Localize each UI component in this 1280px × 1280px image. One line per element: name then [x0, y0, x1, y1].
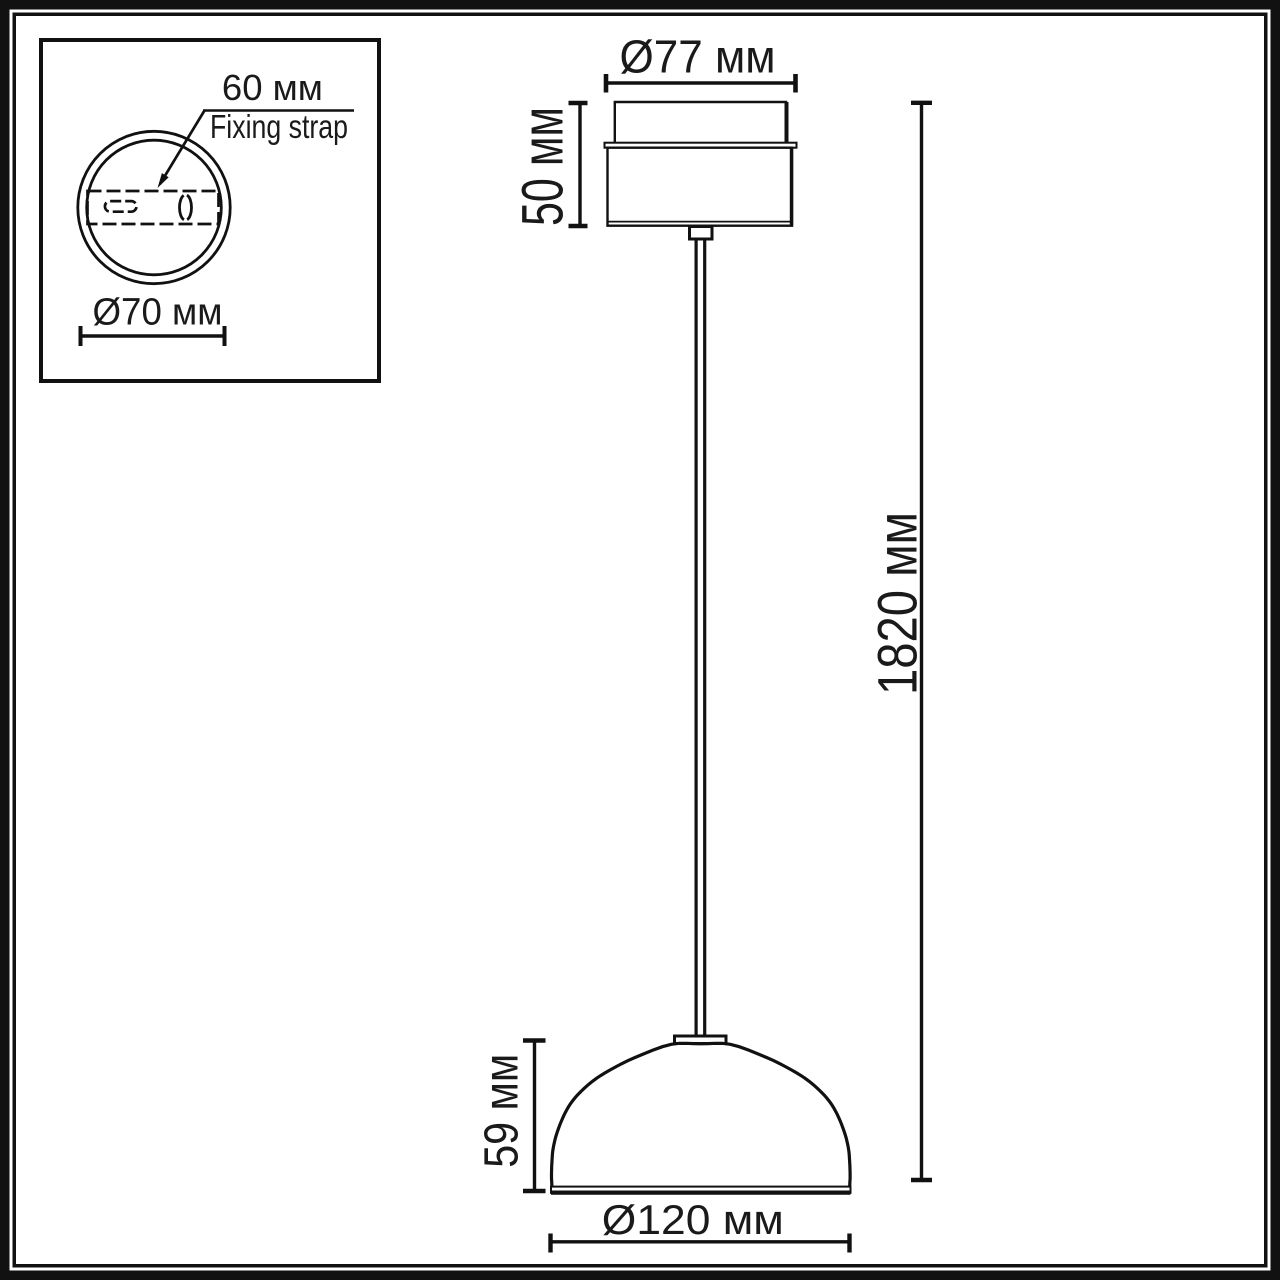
svg-text:Ø70 мм: Ø70 мм [93, 292, 223, 334]
svg-text:60 мм: 60 мм [222, 67, 323, 108]
svg-text:Ø77 мм: Ø77 мм [620, 31, 776, 83]
svg-text:1820 мм: 1820 мм [866, 512, 929, 695]
svg-text:50 мм: 50 мм [511, 107, 576, 226]
svg-text:Ø120 мм: Ø120 мм [602, 1196, 784, 1243]
svg-text:59 мм: 59 мм [476, 1054, 529, 1168]
svg-text:Fixing strap: Fixing strap [210, 109, 348, 146]
